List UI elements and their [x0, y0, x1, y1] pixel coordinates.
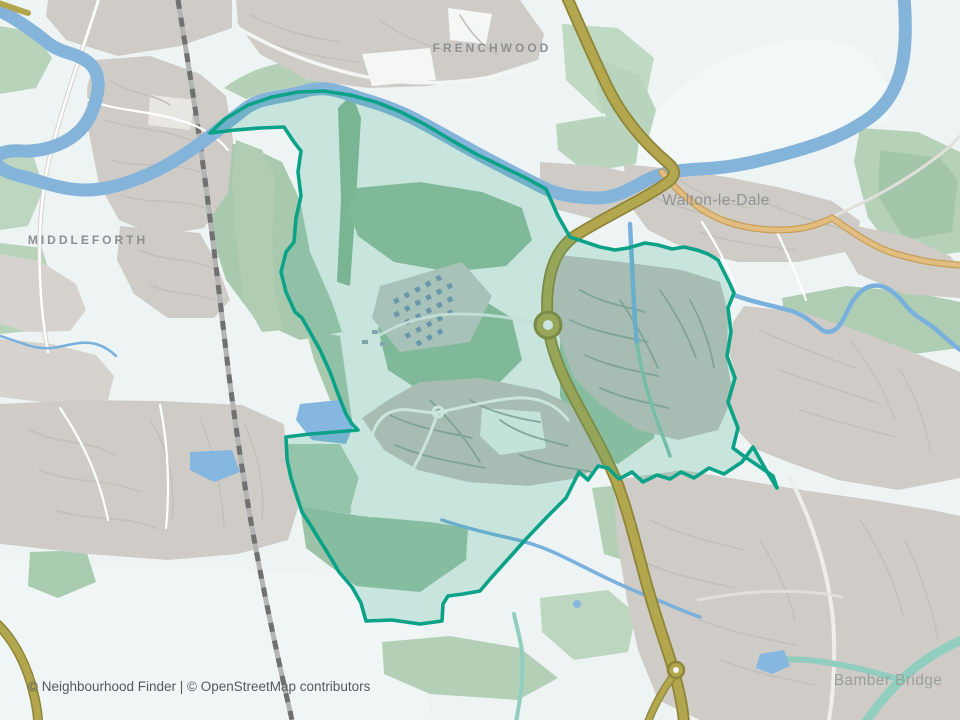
label-middleforth: MIDDLEFORTH [28, 233, 148, 247]
attribution[interactable]: © Neighbourhood Finder | © OpenStreetMap… [28, 679, 371, 694]
label-walton-le-dale: Walton-le-Dale [662, 192, 770, 209]
map-svg: FRENCHWOOD MIDDLEFORTH Walton-le-Dale Ba… [0, 0, 960, 720]
label-frenchwood: FRENCHWOOD [433, 41, 552, 55]
label-bamber-bridge: Bamber Bridge [834, 672, 943, 689]
map-canvas[interactable]: FRENCHWOOD MIDDLEFORTH Walton-le-Dale Ba… [0, 0, 960, 720]
